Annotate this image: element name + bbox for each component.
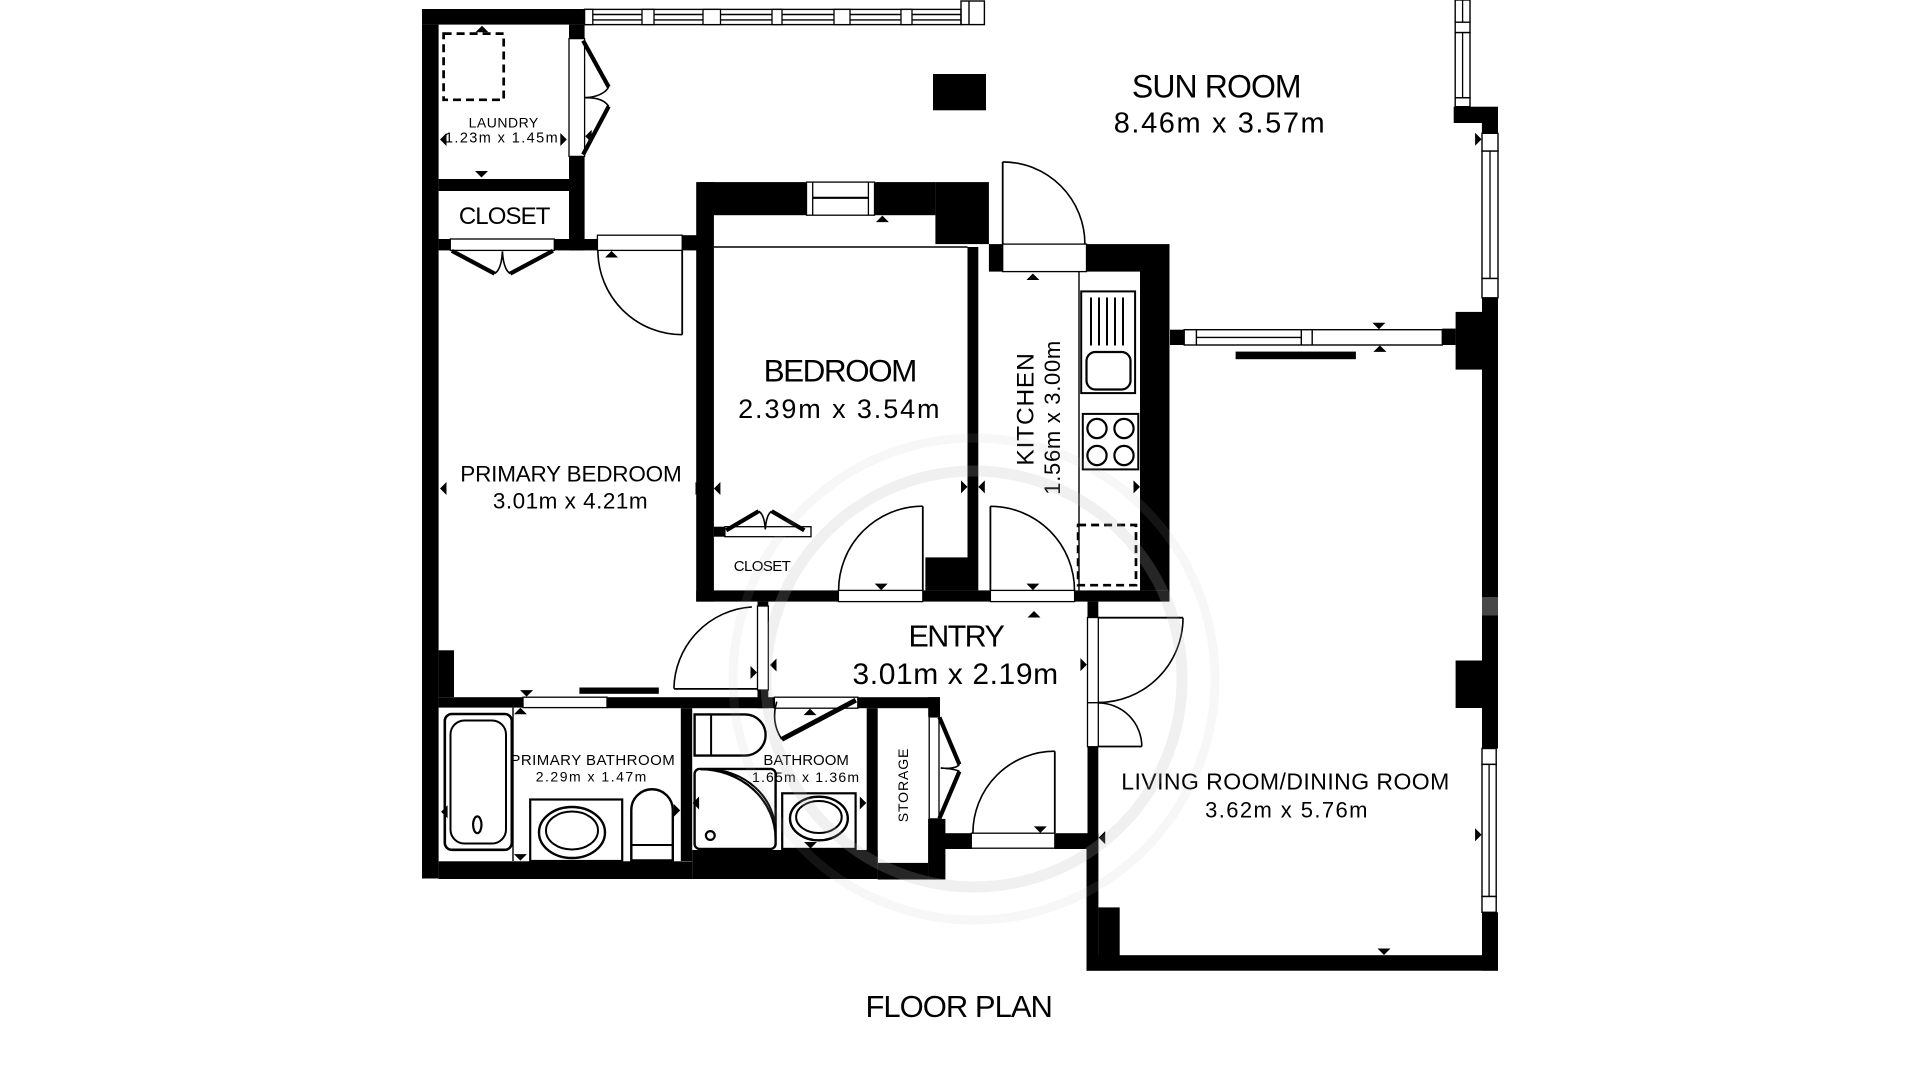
svg-text:1.56m x 3.00m: 1.56m x 3.00m: [1040, 340, 1065, 495]
svg-text:PRIMARY BEDROOM: PRIMARY BEDROOM: [460, 461, 681, 486]
svg-text:STORAGE: STORAGE: [895, 748, 911, 823]
svg-text:3.01m x 4.21m: 3.01m x 4.21m: [493, 488, 648, 513]
svg-text:ENTRY: ENTRY: [908, 620, 1004, 654]
svg-text:3.01m x 2.19m: 3.01m x 2.19m: [852, 658, 1058, 691]
svg-text:3.62m x 5.76m: 3.62m x 5.76m: [1205, 797, 1369, 822]
svg-text:BEDROOM: BEDROOM: [764, 352, 916, 388]
svg-text:1.23m x 1.45m: 1.23m x 1.45m: [445, 131, 559, 147]
svg-text:FLOOR PLAN: FLOOR PLAN: [866, 989, 1052, 1024]
svg-text:LIVING ROOM/DINING ROOM: LIVING ROOM/DINING ROOM: [1121, 769, 1450, 795]
svg-text:CLOSET: CLOSET: [459, 203, 551, 230]
svg-text:2.29m x 1.47m: 2.29m x 1.47m: [536, 768, 648, 784]
svg-text:1.65m x 1.36m: 1.65m x 1.36m: [752, 769, 860, 785]
svg-text:PRIMARY BATHROOM: PRIMARY BATHROOM: [510, 752, 675, 769]
svg-text:2.39m x 3.54m: 2.39m x 3.54m: [738, 394, 941, 424]
svg-text:LAUNDRY: LAUNDRY: [469, 114, 539, 130]
svg-text:8.46m x 3.57m: 8.46m x 3.57m: [1114, 108, 1327, 140]
svg-text:SUN ROOM: SUN ROOM: [1132, 69, 1301, 105]
